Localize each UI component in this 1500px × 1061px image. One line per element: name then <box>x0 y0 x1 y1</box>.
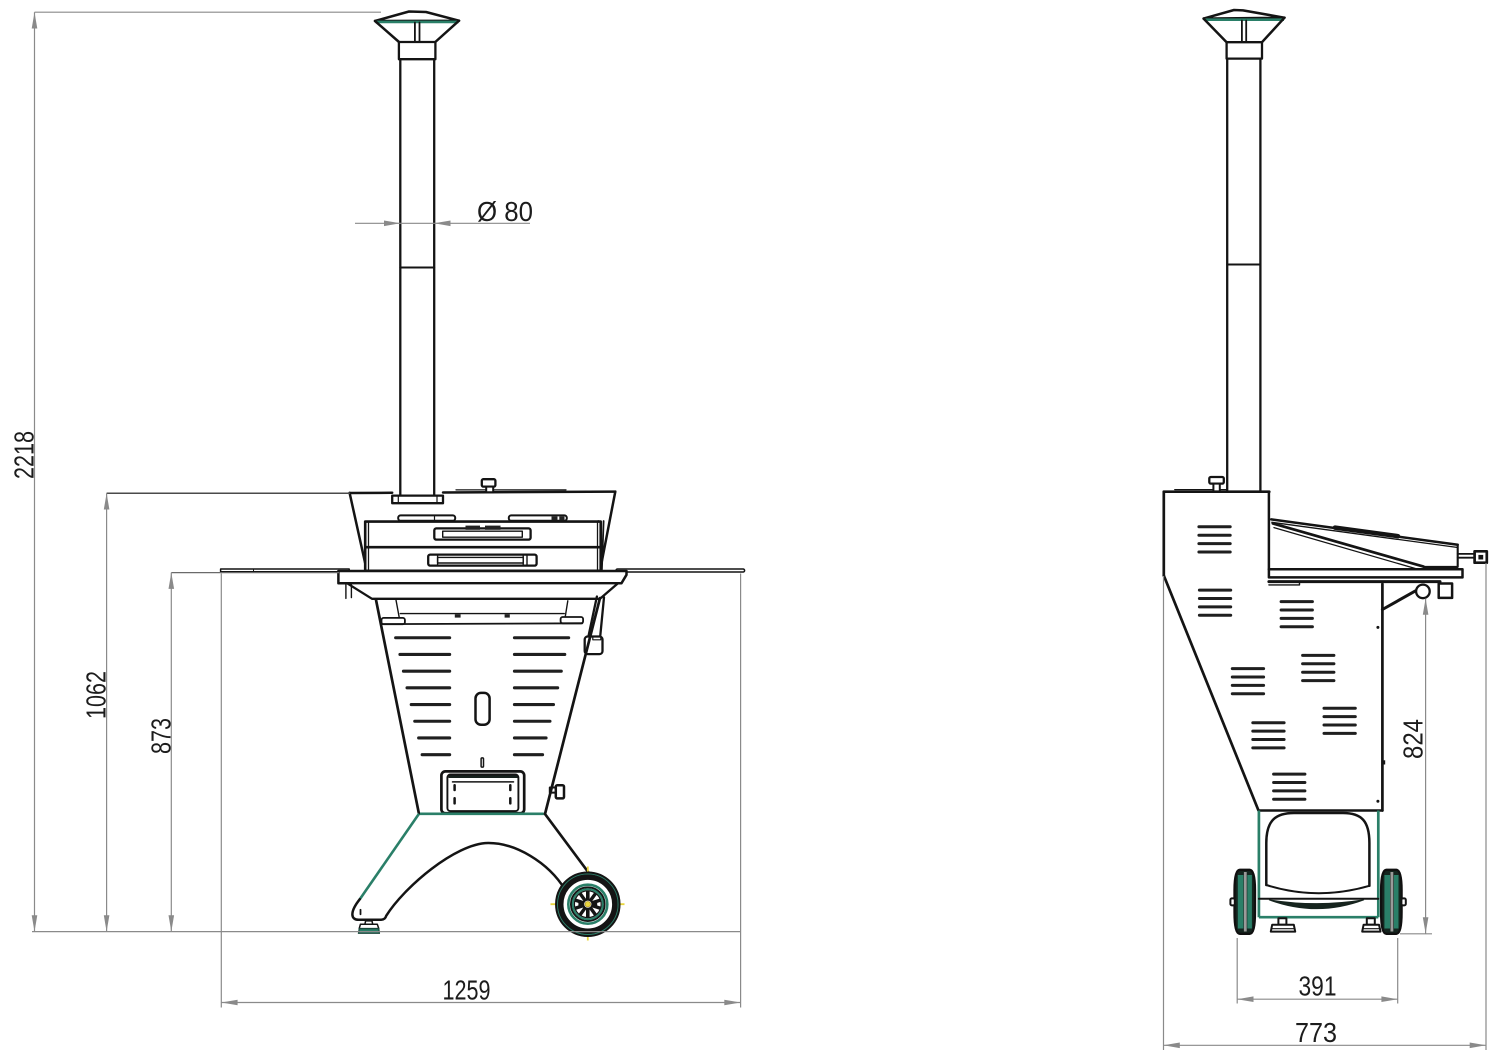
svg-text:824: 824 <box>1398 719 1429 759</box>
svg-text:2218: 2218 <box>9 431 40 479</box>
svg-text:1259: 1259 <box>443 975 491 1006</box>
svg-text:773: 773 <box>1295 1017 1337 1048</box>
svg-text:1062: 1062 <box>81 671 112 719</box>
svg-text:873: 873 <box>145 718 176 754</box>
svg-text:391: 391 <box>1299 971 1337 1002</box>
svg-text:Ø 80: Ø 80 <box>477 196 533 227</box>
